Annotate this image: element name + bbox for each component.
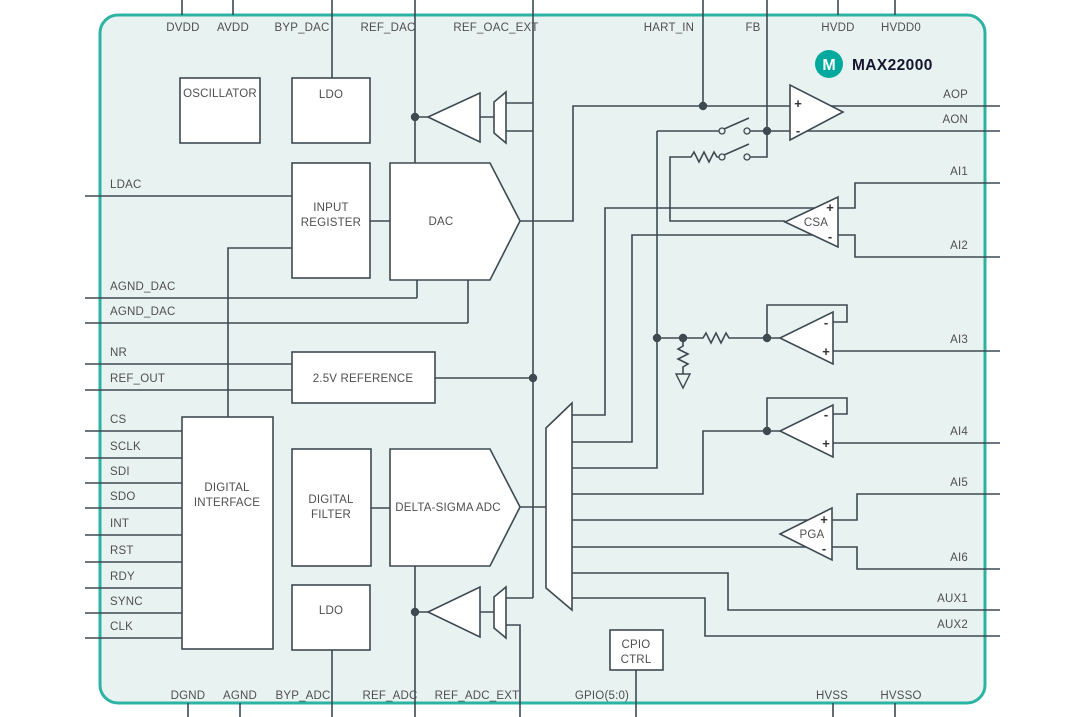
pga-minus: - [822, 541, 826, 556]
pin-label-agnd-dac-2: AGND_DAC [110, 306, 176, 318]
pin-label-ref-adc: REF_ADC [362, 690, 417, 702]
pin-label-agnd-dac-1: AGND_DAC [110, 281, 176, 293]
pin-label-ai5: AI5 [950, 477, 968, 489]
pin-label-sdi: SDI [110, 466, 130, 478]
block-diagram-page: M MAX22000 DVDD AVDD BYP_DAC REF_DAC REF… [0, 0, 1080, 717]
pin-label-byp-dac: BYP_DAC [274, 22, 329, 34]
output-amp-plus: + [794, 96, 802, 111]
ai4-amp-minus: - [824, 407, 828, 422]
pin-label-ref-dac: REF_DAC [360, 22, 415, 34]
pin-label-cs: CS [110, 414, 127, 426]
pin-label-avdd: AVDD [217, 22, 249, 34]
pin-label-dgnd: DGND [171, 690, 206, 702]
label-gpio-ctrl-2: CTRL [621, 654, 652, 666]
ref-adc-mux [494, 587, 506, 638]
csa-plus: + [826, 200, 834, 215]
label-gpio-ctrl-1: CPIO [622, 639, 651, 651]
label-adc: DELTA-SIGMA ADC [395, 502, 500, 514]
label-input-register-1: INPUT [313, 202, 349, 214]
pin-label-aop: AOP [943, 89, 968, 101]
pin-label-hvdd0: HVDD0 [881, 22, 921, 34]
pin-label-rdy: RDY [110, 571, 135, 583]
output-amp-minus: - [796, 123, 800, 138]
pin-label-agnd: AGND [223, 690, 257, 702]
pin-label-ai1: AI1 [950, 166, 968, 178]
pin-label-hvss: HVSS [816, 690, 848, 702]
pin-label-aon: AON [942, 114, 968, 126]
pin-label-aux1: AUX1 [937, 593, 968, 605]
label-csa: CSA [804, 217, 828, 229]
pin-label-hvdd: HVDD [821, 22, 854, 34]
pin-label-fb: FB [745, 22, 760, 34]
csa-minus: - [828, 229, 832, 244]
pin-label-hart-in: HART_IN [644, 22, 694, 34]
label-digital-filter-1: DIGITAL [308, 494, 354, 506]
pin-label-rst: RST [110, 545, 134, 557]
adc-input-mux [546, 403, 572, 610]
pin-label-ref-out: REF_OUT [110, 373, 165, 385]
label-digital-filter-2: FILTER [311, 509, 351, 521]
label-dac: DAC [429, 216, 454, 228]
maxim-logo-letter: M [822, 57, 835, 74]
pga-plus: + [820, 512, 828, 527]
pin-label-ref-oac-ext: REF_OAC_EXT [453, 22, 538, 34]
pin-label-gpio: GPIO(5:0) [575, 690, 629, 702]
pin-label-ref-adc-ext: REF_ADC_EXT [435, 690, 520, 702]
pin-label-ai2: AI2 [950, 240, 968, 252]
pin-label-dvdd: DVDD [166, 22, 199, 34]
ai3-amp-plus: + [822, 344, 830, 359]
pin-label-byp-adc: BYP_ADC [275, 690, 330, 702]
block-ldo-dac [292, 78, 370, 143]
label-pga: PGA [800, 529, 825, 541]
ai4-amp-plus: + [822, 436, 830, 451]
max22000-block-diagram: M MAX22000 DVDD AVDD BYP_DAC REF_DAC REF… [0, 0, 1080, 717]
pin-label-aux2: AUX2 [937, 619, 968, 631]
pin-label-sclk: SCLK [110, 441, 141, 453]
pin-label-sdo: SDO [110, 491, 136, 503]
label-digital-interface-2: INTERFACE [194, 497, 260, 509]
pin-label-ai4: AI4 [950, 426, 968, 438]
pin-label-ldac: LDAC [110, 179, 141, 191]
label-reference: 2.5V REFERENCE [313, 373, 414, 385]
pin-label-int: INT [110, 518, 129, 530]
pin-label-hvsso: HVSSO [880, 690, 921, 702]
pin-label-ai6: AI6 [950, 552, 968, 564]
pin-label-clk: CLK [110, 621, 133, 633]
label-input-register-2: REGISTER [301, 217, 361, 229]
block-ldo-adc [292, 585, 370, 650]
pin-label-sync: SYNC [110, 596, 143, 608]
label-ldo-adc: LDO [319, 605, 343, 617]
ref-dac-mux [494, 92, 506, 143]
block-digital-filter [292, 449, 371, 566]
label-oscillator: OSCILLATOR [183, 88, 257, 100]
pin-label-ai3: AI3 [950, 334, 968, 346]
part-number: MAX22000 [852, 57, 933, 74]
block-digital-interface [182, 417, 273, 649]
ai3-amp-minus: - [824, 315, 828, 330]
label-digital-interface-1: DIGITAL [204, 482, 250, 494]
label-ldo-dac: LDO [319, 89, 343, 101]
pin-label-nr: NR [110, 347, 127, 359]
